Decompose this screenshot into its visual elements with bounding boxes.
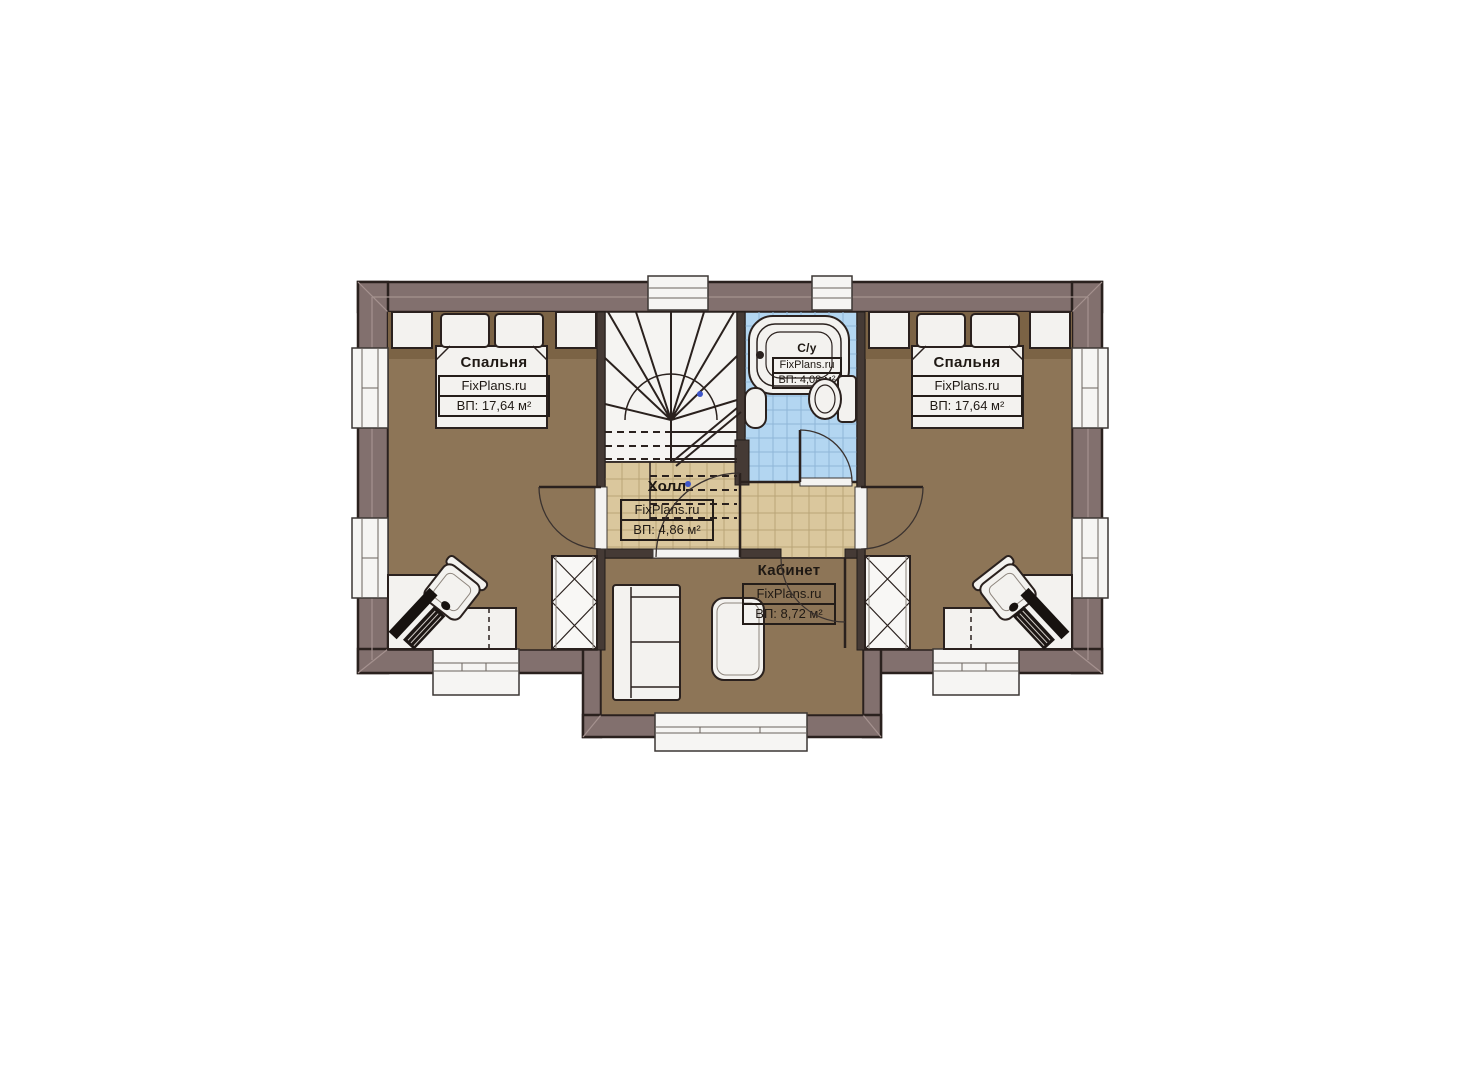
study-door bbox=[781, 558, 845, 648]
toilet bbox=[809, 376, 856, 422]
floor-plan-page: Спальня FixPlans.ru ВП: 17,64 м² Спальня… bbox=[0, 0, 1473, 1080]
door-swing bbox=[781, 558, 845, 622]
floor-plan-overlay-svg bbox=[0, 0, 1473, 1080]
